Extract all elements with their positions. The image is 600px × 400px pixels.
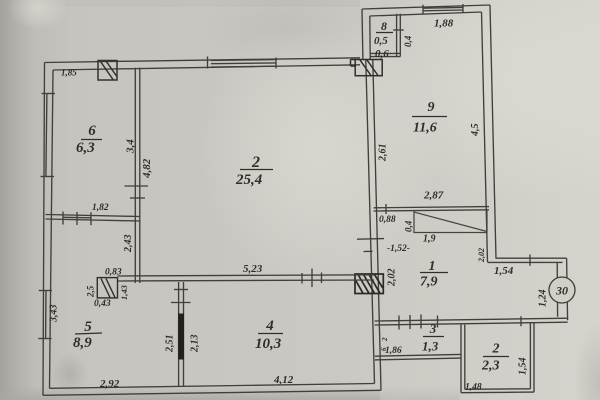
svg-text:11,6: 11,6: [413, 121, 437, 136]
svg-text:3,43: 3,43: [49, 305, 60, 324]
svg-text:2: 2: [381, 337, 389, 342]
svg-text:5: 5: [84, 319, 92, 335]
svg-text:2,87: 2,87: [423, 190, 444, 202]
svg-text:6: 6: [88, 123, 96, 139]
svg-text:30: 30: [555, 284, 568, 298]
svg-text:2,92: 2,92: [99, 378, 120, 390]
svg-text:0,5: 0,5: [374, 35, 388, 47]
svg-text:3,4: 3,4: [125, 139, 137, 154]
svg-text:7,9: 7,9: [420, 275, 438, 290]
svg-text:1,24: 1,24: [538, 290, 549, 308]
svg-text:25,4: 25,4: [235, 172, 263, 188]
svg-text:9: 9: [428, 100, 435, 115]
svg-text:3: 3: [429, 321, 437, 336]
svg-text:4,5: 4,5: [470, 124, 481, 138]
svg-text:2: 2: [251, 154, 260, 171]
svg-text:1,54: 1,54: [494, 265, 514, 277]
svg-text:2,43: 2,43: [123, 235, 134, 254]
svg-text:4,82: 4,82: [141, 158, 153, 179]
svg-text:4,12: 4,12: [273, 374, 294, 386]
svg-text:1,3: 1,3: [422, 339, 439, 354]
svg-text:2: 2: [492, 342, 500, 357]
svg-text:1,43: 1,43: [119, 284, 129, 300]
svg-text:2,51: 2,51: [165, 335, 176, 354]
svg-text:0,6: 0,6: [375, 48, 389, 60]
svg-text:0,43: 0,43: [94, 299, 111, 309]
svg-text:1,54: 1,54: [518, 358, 529, 376]
svg-text:2,02: 2,02: [477, 248, 486, 263]
svg-text:2,02: 2,02: [387, 269, 398, 288]
svg-text:1,82: 1,82: [92, 203, 109, 213]
svg-text:2,5: 2,5: [86, 285, 96, 298]
svg-text:10,3: 10,3: [255, 336, 282, 352]
svg-text:2,61: 2,61: [378, 144, 389, 163]
svg-text:5,23: 5,23: [243, 263, 263, 275]
svg-text:2,13: 2,13: [190, 335, 201, 354]
svg-text:1,88: 1,88: [434, 18, 454, 30]
svg-text:4: 4: [265, 318, 274, 334]
svg-text:1,48: 1,48: [465, 383, 482, 393]
svg-text:6,3: 6,3: [76, 140, 95, 156]
svg-text:0,4: 0,4: [404, 220, 414, 232]
svg-text:8,9: 8,9: [73, 335, 92, 351]
svg-text:1,9: 1,9: [423, 234, 436, 245]
svg-text:2,3: 2,3: [481, 359, 500, 374]
svg-text:0,88: 0,88: [379, 215, 396, 225]
svg-text:1: 1: [429, 259, 436, 274]
svg-text:0,83: 0,83: [105, 268, 122, 278]
svg-text:1,85: 1,85: [61, 68, 77, 78]
svg-text:1,86: 1,86: [385, 346, 402, 356]
svg-text:8: 8: [381, 19, 387, 33]
svg-text:-1,52-: -1,52-: [387, 244, 410, 254]
svg-text:0,4: 0,4: [403, 35, 413, 47]
